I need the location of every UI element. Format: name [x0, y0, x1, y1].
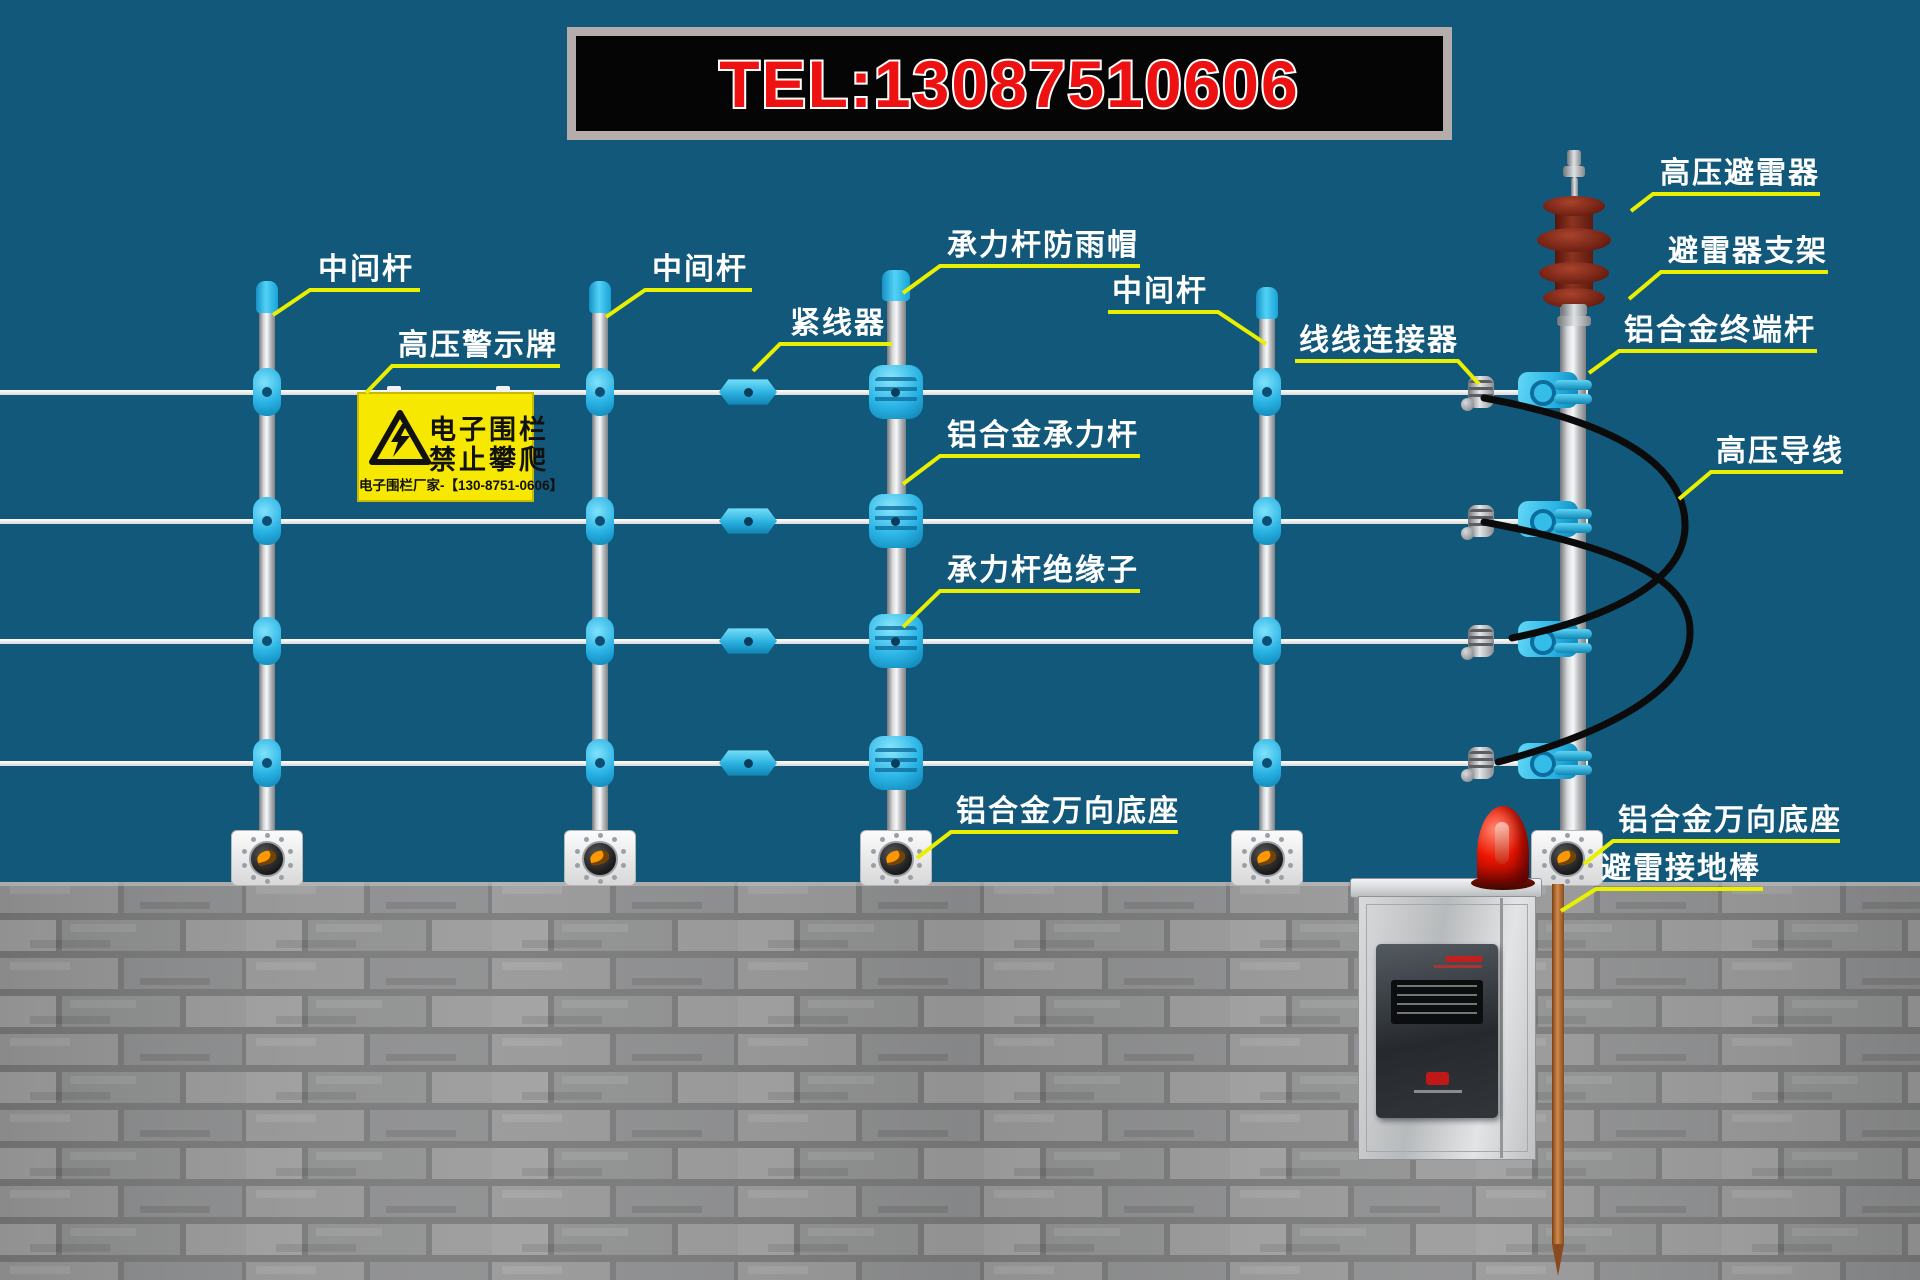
- label-warning-sign: 高压警示牌: [398, 329, 558, 364]
- label-wire-tensioner: 紧线器: [790, 307, 886, 342]
- label-terminal-pole: 铝合金终端杆: [1624, 314, 1816, 349]
- label-wire-connector: 线线连接器: [1299, 324, 1459, 359]
- label-arrester: 高压避雷器: [1660, 157, 1820, 192]
- label-arrester-bracket: 避雷器支架: [1668, 235, 1828, 270]
- label-lead-wire: 高压导线: [1716, 435, 1844, 470]
- label-base-end: 铝合金万向底座: [1618, 804, 1842, 839]
- label-mid-pole-3: 中间杆: [1112, 275, 1208, 310]
- label-base-mid: 铝合金万向底座: [956, 795, 1180, 830]
- label-mid-pole-1: 中间杆: [318, 253, 414, 288]
- label-bearing-pole: 铝合金承力杆: [947, 419, 1139, 454]
- label-rain-cap: 承力杆防雨帽: [947, 229, 1139, 264]
- label-mid-pole-2: 中间杆: [652, 253, 748, 288]
- electric-fence-diagram: TEL:13087510606 电子围栏 禁止攀爬 电子围栏厂家-【130-87…: [0, 0, 1920, 1280]
- label-bearing-insulator: 承力杆绝缘子: [947, 554, 1139, 589]
- leader-lines: [0, 0, 1920, 1280]
- label-ground-rod: 避雷接地棒: [1601, 852, 1761, 887]
